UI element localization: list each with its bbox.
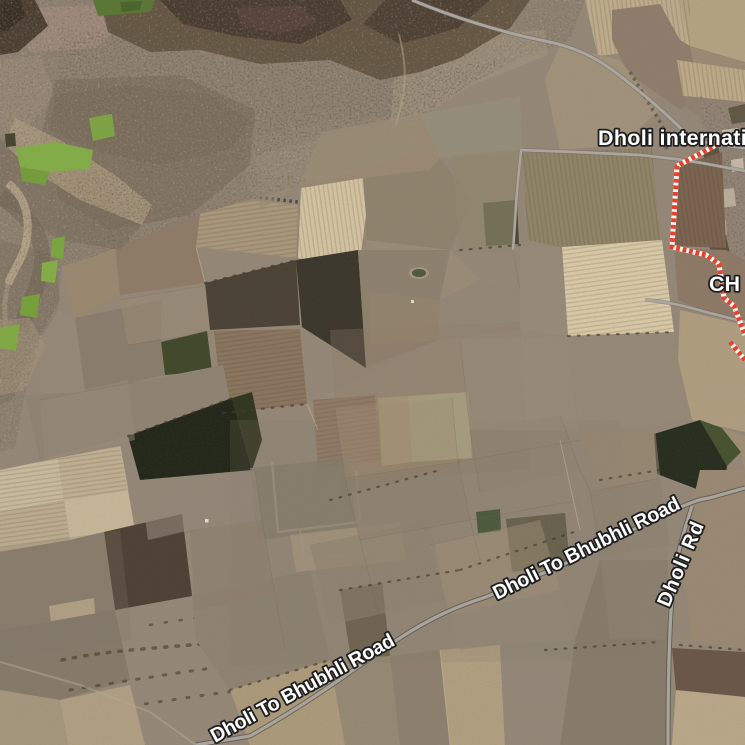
- svg-text:Dholi internati: Dholi internati: [598, 126, 745, 150]
- svg-text:CH: CH: [709, 272, 740, 296]
